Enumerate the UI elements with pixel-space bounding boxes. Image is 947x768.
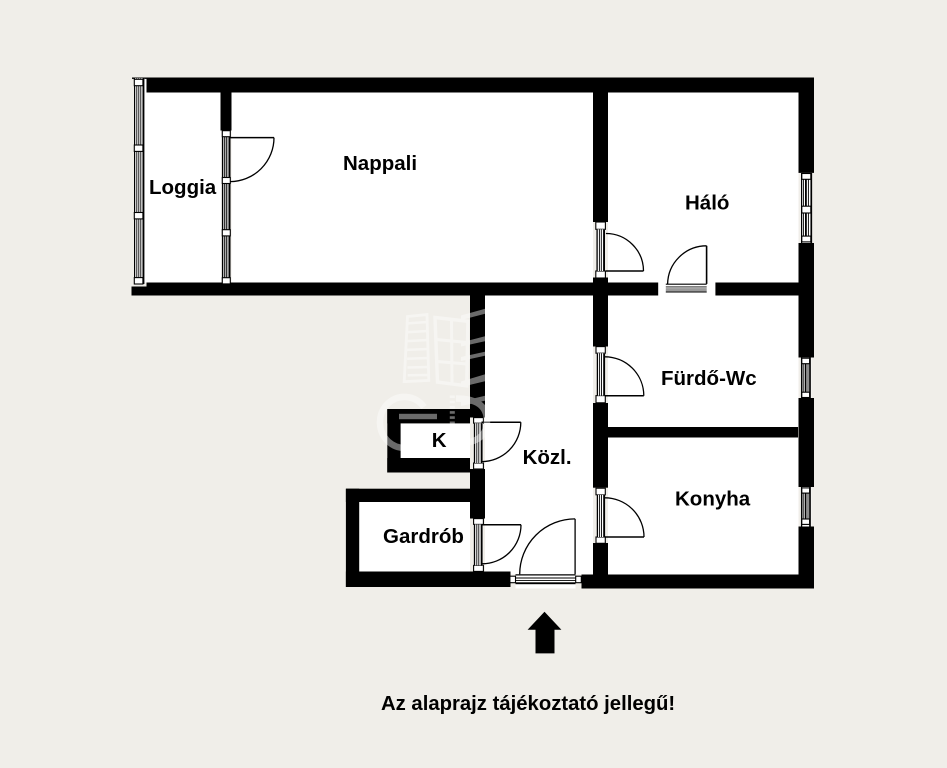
svg-text:Gardrób: Gardrób xyxy=(383,525,464,548)
svg-text:K: K xyxy=(432,429,447,452)
svg-text:Közl.: Közl. xyxy=(523,446,572,469)
svg-text:Az alaprajz tájékoztató jelleg: Az alaprajz tájékoztató jellegű! xyxy=(381,693,675,715)
svg-text:Nappali: Nappali xyxy=(343,152,417,175)
svg-text:Háló: Háló xyxy=(685,192,729,215)
svg-text:Fürdő-Wc: Fürdő-Wc xyxy=(661,367,757,390)
svg-text:Loggia: Loggia xyxy=(149,176,217,199)
svg-text:Konyha: Konyha xyxy=(675,487,751,510)
